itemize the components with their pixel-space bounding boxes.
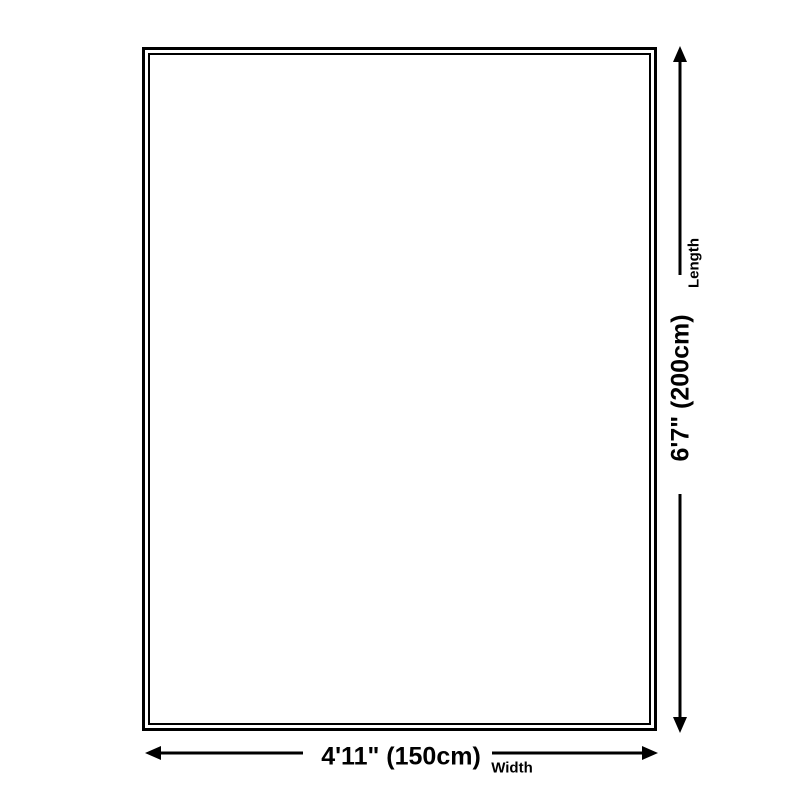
arrow-left-icon bbox=[145, 746, 161, 760]
product-outline bbox=[142, 47, 657, 731]
arrow-down-icon bbox=[673, 717, 687, 733]
product-inner-border bbox=[148, 53, 651, 725]
width-dimension-label: Width bbox=[491, 761, 533, 776]
width-dimension-value: 4'11" (150cm) bbox=[321, 745, 481, 770]
length-dimension-value: 6'7" (200cm) bbox=[669, 314, 694, 461]
arrow-right-icon bbox=[642, 746, 658, 760]
arrow-up-icon bbox=[673, 46, 687, 62]
length-dimension-label: Length bbox=[687, 238, 702, 288]
rug-dimension-diagram: 6'7" (200cm) Length 4'11" (150cm) Width bbox=[0, 0, 800, 800]
